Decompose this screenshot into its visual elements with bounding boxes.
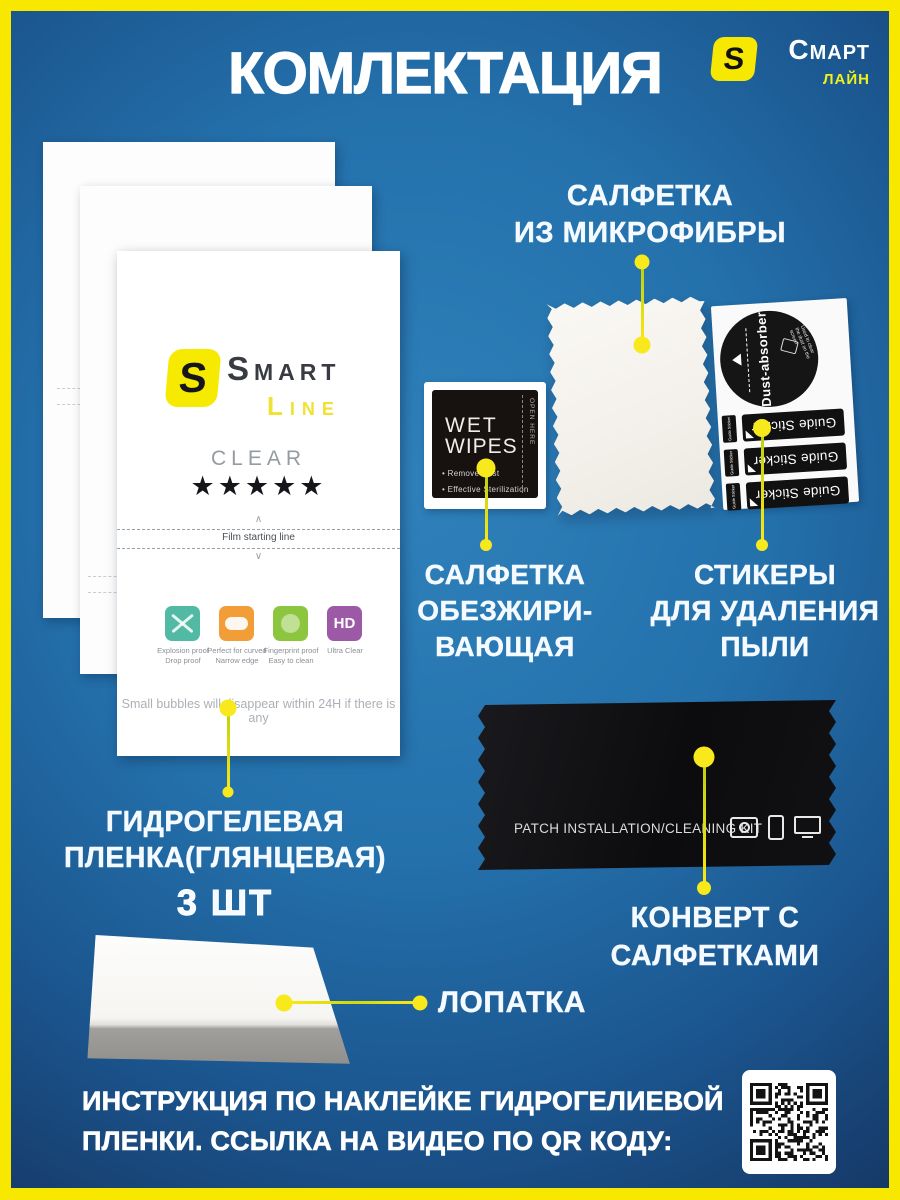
- brand-name-bottom: лайн: [766, 64, 870, 90]
- pill-shape-icon: [225, 617, 248, 630]
- qr-code: [742, 1070, 836, 1174]
- monitor-icon: [794, 816, 821, 834]
- phone-icon: [768, 815, 784, 840]
- label-line: САЛФЕТКА: [470, 178, 830, 215]
- caption-line: Fingerprint proof: [263, 646, 318, 655]
- circle-shape-icon: [281, 614, 300, 633]
- cleaning-kit-envelope: PATCH INSTALLATION/CLEANING KIT: [478, 700, 836, 870]
- label-film-quantity: 3 ШТ: [60, 880, 390, 926]
- feature-caption: Perfect for curved Narrow edge: [206, 646, 268, 666]
- label-spatula: ЛОПАТКА: [438, 984, 586, 1022]
- strip-text: Guide Sticker: [753, 449, 839, 469]
- dust-absorber-sticker: Dust-absorber Used to clear the dust on …: [717, 308, 821, 410]
- five-stars: ★★★★★: [117, 471, 400, 502]
- fold-notch: [748, 464, 756, 472]
- callout-dot: [756, 539, 768, 551]
- feature-caption: Fingerprint proof Easy to clean: [260, 646, 322, 666]
- callout-dot: [223, 787, 234, 798]
- bubbles-note: Small bubbles will disappear within 24H …: [117, 697, 400, 725]
- brand-name-top: Смарт: [766, 34, 870, 66]
- dashed-line: [117, 529, 400, 530]
- callout-dot: [220, 700, 237, 717]
- callout-dot: [635, 255, 650, 270]
- callout-line-envelope: [703, 757, 706, 889]
- guide-sticker-tab: Guide Sticker: [726, 483, 742, 511]
- callout-dot: [480, 539, 492, 551]
- label-line: САЛФЕТКА: [390, 557, 620, 593]
- tab-text: Guide Sticker: [726, 417, 732, 441]
- camera-lens: [739, 822, 750, 833]
- hd-glyph: HD: [327, 606, 362, 641]
- envelope-label: PATCH INSTALLATION/CLEANING KIT: [514, 821, 762, 836]
- label-microfiber: САЛФЕТКА ИЗ МИКРОФИБРЫ: [470, 178, 830, 252]
- callout-dot: [697, 881, 711, 895]
- label-dust-stickers: СТИКЕРЫ ДЛЯ УДАЛЕНИЯ ПЫЛИ: [642, 557, 888, 664]
- camera-icon: [730, 817, 758, 838]
- caption-line: Easy to clean: [268, 656, 313, 665]
- label-envelope: КОНВЕРТ С САЛФЕТКАМИ: [585, 900, 845, 975]
- dust-sticker-sheet: Dust-absorber Used to clear the dust on …: [711, 298, 859, 510]
- caption-line: Drop proof: [165, 656, 200, 665]
- callout-dot: [634, 337, 651, 354]
- label-degreasing-wipe: САЛФЕТКА ОБЕЗЖИРИ- ВАЮЩАЯ: [390, 557, 620, 664]
- footer-text-line-1: ИНСТРУКЦИЯ ПО НАКЛЕЙКЕ ГИДРОГЕЛИЕВОЙ: [82, 1086, 742, 1117]
- label-line: ПЫЛИ: [642, 629, 888, 665]
- guide-sticker-tab: Guide Sticker: [724, 449, 740, 477]
- brand-logo: S Смарт лайн: [712, 34, 872, 94]
- label-line: ВАЮЩАЯ: [390, 629, 620, 665]
- caption-line: Ultra Clear: [327, 646, 363, 655]
- smartline-s-icon: S: [164, 349, 221, 407]
- callout-dot: [753, 419, 771, 437]
- guide-sticker-tab: Guide Sticker: [722, 415, 738, 443]
- product-infographic: КОМЛЕКТАЦИЯ S Смарт лайн S Smart Line CL…: [0, 0, 900, 1200]
- film-clear-text: CLEAR: [117, 447, 400, 471]
- callout-dot: [413, 995, 428, 1010]
- feature-caption: Explosion proof Drop proof: [152, 646, 214, 666]
- smartline-wordmark: Smart: [227, 350, 340, 388]
- brand-s-icon: S: [710, 37, 759, 81]
- feature-caption: Ultra Clear: [314, 646, 376, 656]
- fold-notch: [750, 498, 758, 506]
- hd-icon: HD: [327, 606, 362, 641]
- callout-line-microfiber: [641, 262, 644, 346]
- caption-line: Perfect for curved: [207, 646, 266, 655]
- label-line: САЛФЕТКАМИ: [585, 938, 845, 976]
- tab-text: Guide Sticker: [729, 451, 735, 475]
- caption-line: Explosion proof: [157, 646, 209, 655]
- label-line: ГИДРОГЕЛЕВАЯ: [60, 804, 390, 840]
- smartline-wordmark-line: Line: [267, 391, 341, 422]
- chevron-up-icon: ∧: [117, 514, 400, 525]
- callout-line-film: [227, 708, 230, 793]
- explosion-proof-icon: [165, 606, 200, 641]
- monitor-stand: [802, 836, 813, 838]
- tear-dashed-line: [522, 395, 523, 493]
- qr-pattern: [750, 1079, 828, 1165]
- open-here-text: OPEN HERE: [528, 398, 535, 445]
- callout-line-wipes: [485, 468, 488, 546]
- label-line: ПЛЕНКА(ГЛЯНЦЕВАЯ): [60, 840, 390, 876]
- spatula: [82, 928, 354, 1068]
- label-line: КОНВЕРТ С: [585, 900, 845, 938]
- label-line: СТИКЕРЫ: [642, 557, 888, 593]
- tab-text: Guide Sticker: [731, 485, 737, 509]
- label-line: ДЛЯ УДАЛЕНИЯ: [642, 593, 888, 629]
- curved-edge-icon: [219, 606, 254, 641]
- footer-text-line-2: ПЛЕНКИ. ССЫЛКА НА ВИДЕО ПО QR КОДУ:: [82, 1126, 742, 1157]
- callout-dot: [694, 747, 715, 768]
- film-starting-line-text: Film starting line: [117, 532, 400, 543]
- chevron-down-icon: ∨: [117, 551, 400, 562]
- callout-dot: [276, 994, 293, 1011]
- label-line: ОБЕЗЖИРИ-: [390, 593, 620, 629]
- guide-sticker-strip: Guide Sticker: [744, 442, 847, 475]
- callout-dot: [477, 459, 496, 478]
- dashed-line: [117, 548, 400, 549]
- callout-line-stickers: [761, 428, 764, 546]
- film-front-card: S Smart Line CLEAR ★★★★★ ∧ Film starting…: [117, 251, 400, 756]
- label-hydrogel-film: ГИДРОГЕЛЕВАЯ ПЛЕНКА(ГЛЯНЦЕВАЯ): [60, 804, 390, 877]
- wipes-text: WIPES: [445, 435, 518, 459]
- fingerprint-proof-icon: [273, 606, 308, 641]
- callout-line-spatula: [284, 1001, 420, 1004]
- label-line: ИЗ МИКРОФИБРЫ: [470, 215, 830, 252]
- strip-text: Guide Sticker: [755, 483, 841, 503]
- caption-line: Narrow edge: [216, 656, 259, 665]
- microfiber-cloth: [547, 296, 716, 516]
